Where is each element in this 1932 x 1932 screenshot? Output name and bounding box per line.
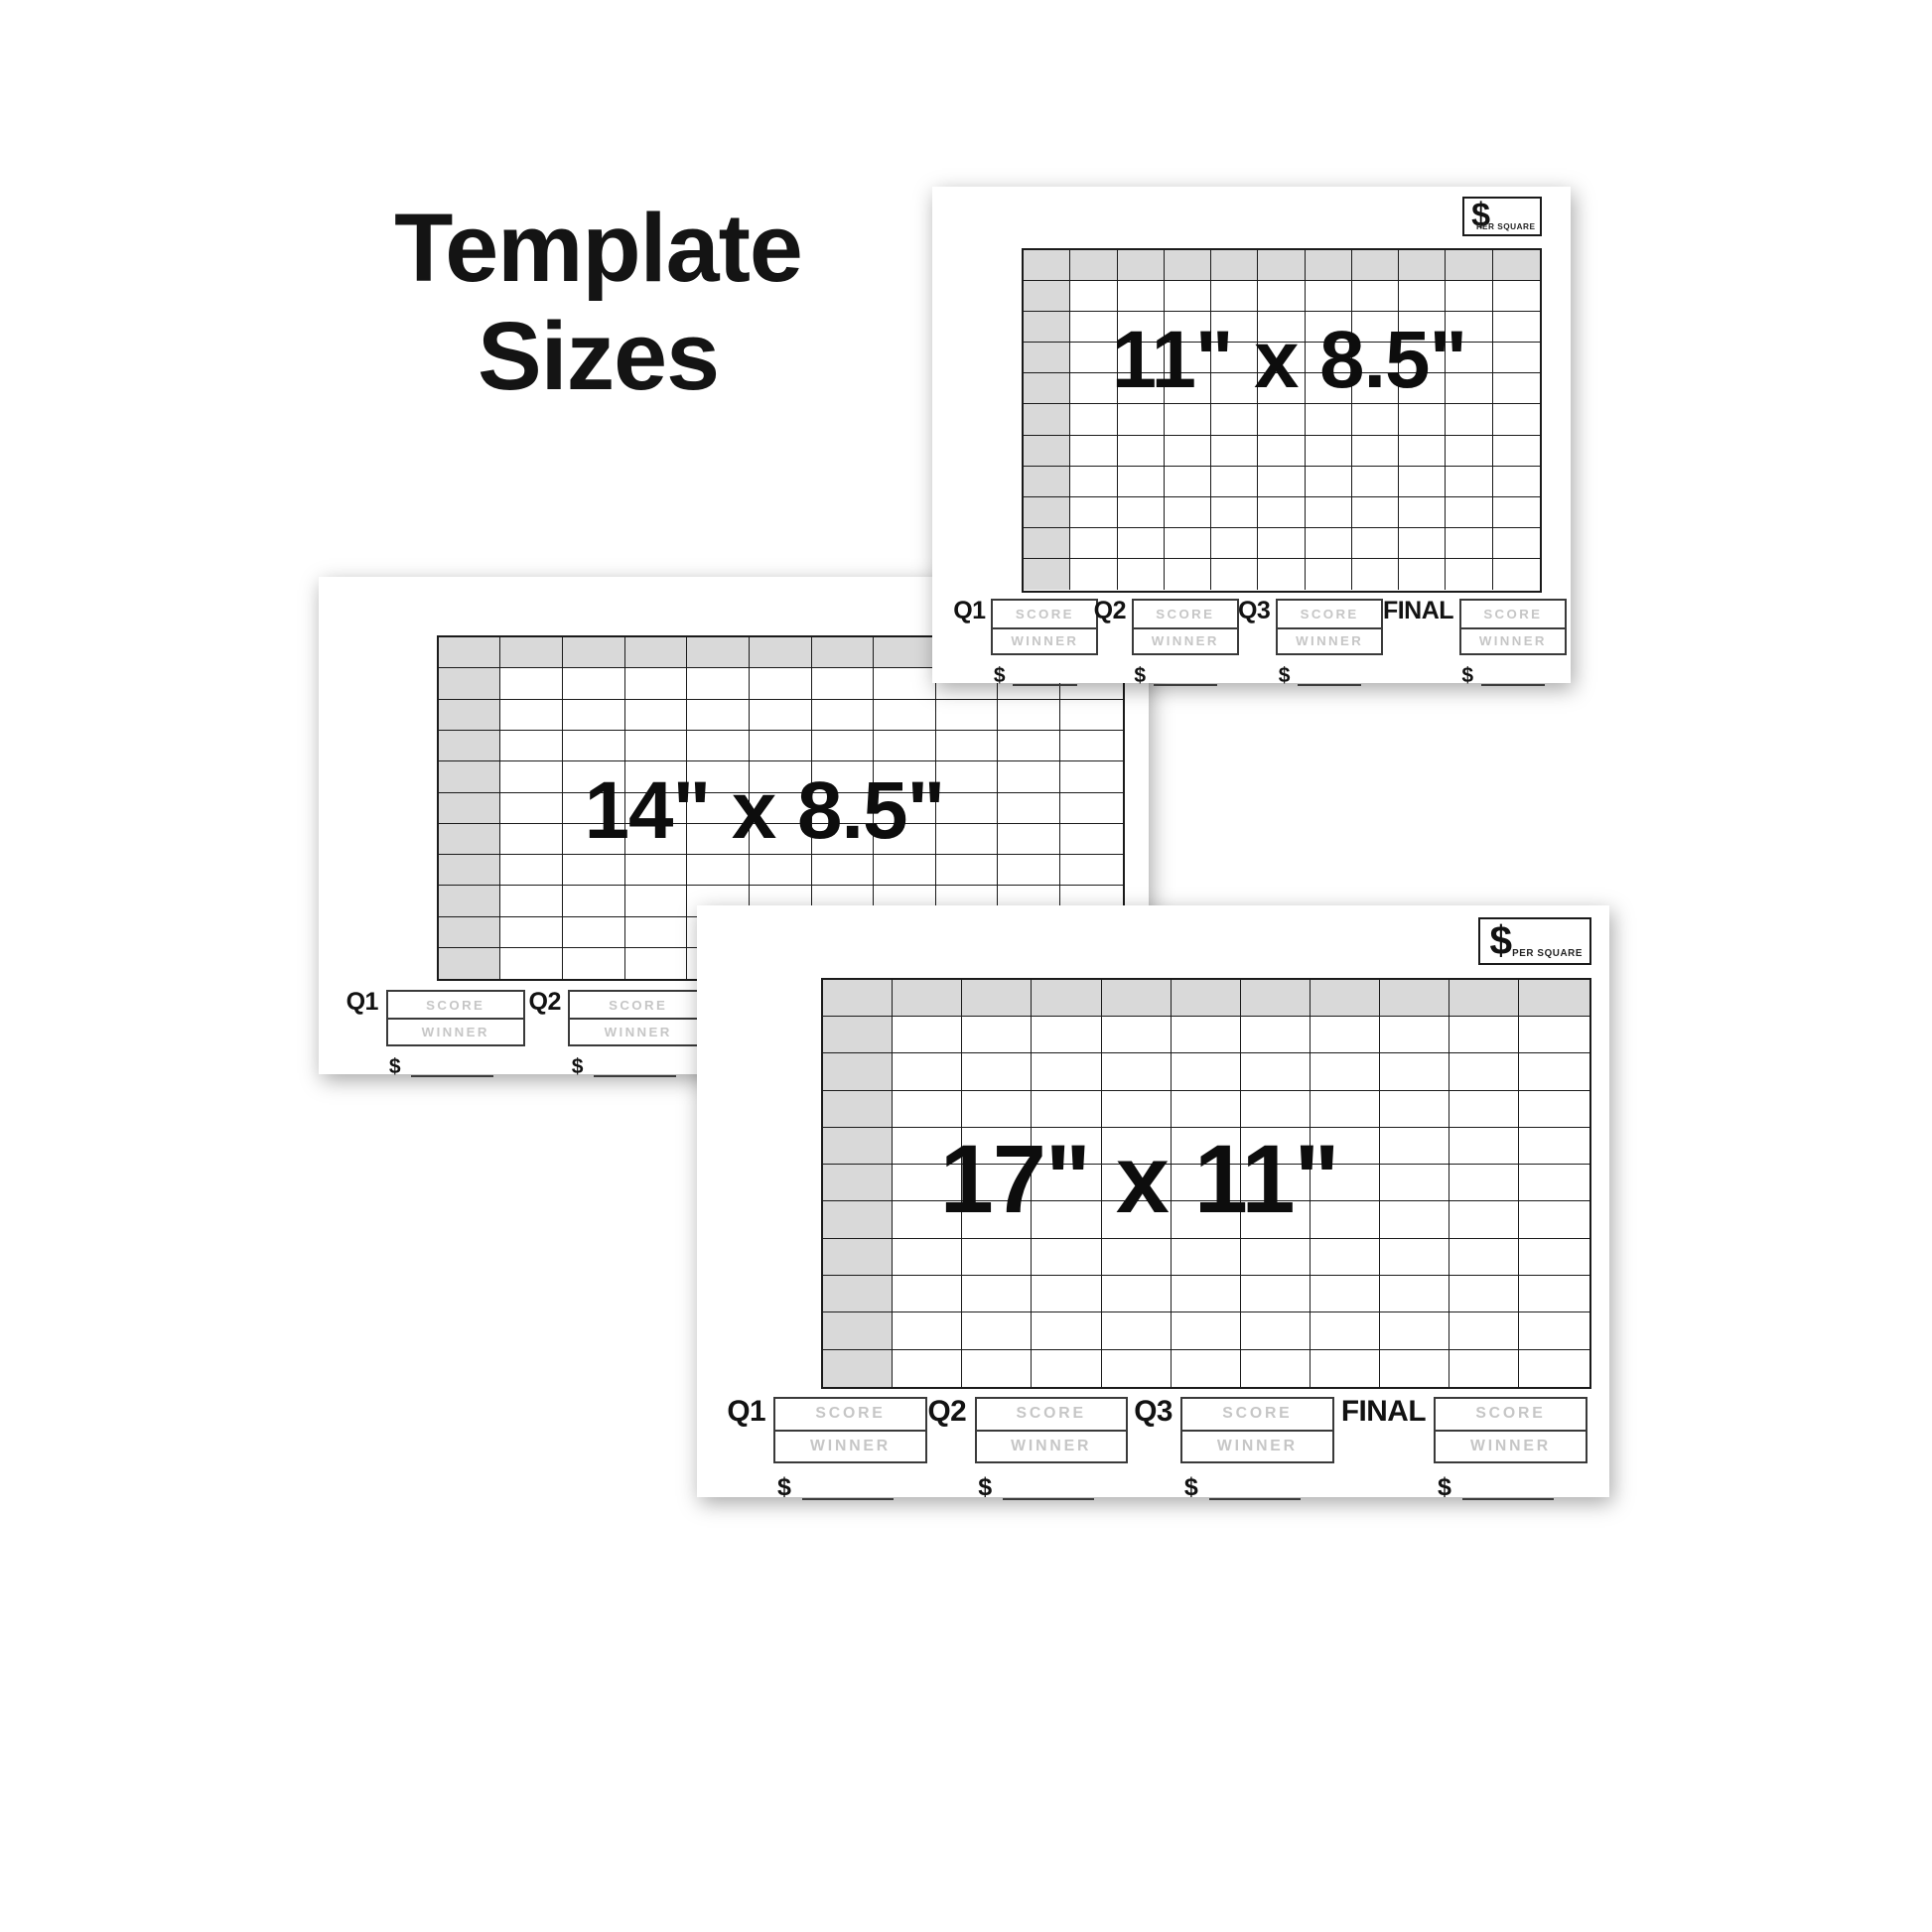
grid-cell xyxy=(962,1312,1032,1349)
grid-cell xyxy=(1493,436,1540,467)
grid-cell xyxy=(998,793,1060,824)
grid-cell xyxy=(1172,1239,1241,1276)
grid-cell xyxy=(1165,497,1211,528)
grid-cell xyxy=(750,731,812,761)
winner-cell: WINNER xyxy=(1134,627,1237,654)
score-cell: SCORE xyxy=(1461,601,1565,627)
header-cell xyxy=(823,1091,893,1128)
grid-cell xyxy=(563,700,625,731)
quarter-label: Q2 xyxy=(1094,599,1126,623)
grid-cell xyxy=(1519,1017,1588,1053)
amount-dollar-sign: $ xyxy=(978,1475,992,1500)
grid-cell xyxy=(1352,559,1399,590)
grid-cell xyxy=(812,700,875,731)
grid-cell xyxy=(1070,559,1117,590)
header-cell xyxy=(823,1128,893,1165)
score-cell: SCORE xyxy=(1134,601,1237,627)
blank-amount-line xyxy=(1481,671,1545,686)
grid-cell xyxy=(1446,436,1492,467)
score-winner-box: SCORE WINNER xyxy=(386,990,525,1046)
grid-cell xyxy=(1241,1091,1311,1128)
grid-cell xyxy=(893,1350,962,1387)
header-cell xyxy=(1102,980,1172,1017)
quarters-row: Q1 SCORE WINNER $ Q2 SCORE WINNER xyxy=(932,599,1571,683)
grid-cell xyxy=(625,700,688,731)
grid-cell xyxy=(1032,1239,1101,1276)
grid-cell xyxy=(1102,1276,1172,1312)
amount-line: $ xyxy=(1434,1475,1587,1500)
dollar-sign: $ xyxy=(1490,919,1513,962)
grid-cell xyxy=(1449,1128,1519,1165)
grid-cell xyxy=(1380,1312,1449,1349)
grid-cell xyxy=(1519,1091,1588,1128)
grid-cell xyxy=(1102,1239,1172,1276)
header-cell xyxy=(1024,281,1070,312)
grid-cell xyxy=(936,824,999,855)
quarter-group-q2: Q2 SCORE WINNER $ xyxy=(529,990,708,1077)
grid-cell xyxy=(1165,528,1211,559)
page-title: Template Sizes xyxy=(293,195,903,410)
grid-cell xyxy=(1070,497,1117,528)
grid-cell xyxy=(500,855,563,886)
grid-cell xyxy=(1449,1312,1519,1349)
amount-dollar-sign: $ xyxy=(1134,665,1146,686)
grid-cell xyxy=(936,761,999,792)
header-cell xyxy=(823,1017,893,1053)
grid-cell xyxy=(1449,1239,1519,1276)
header-cell xyxy=(1211,250,1258,281)
header-cell xyxy=(1024,404,1070,435)
blank-amount-line xyxy=(1013,671,1076,686)
header-cell xyxy=(823,1165,893,1201)
grid-cell xyxy=(812,731,875,761)
grid-cell xyxy=(1352,404,1399,435)
grid-cell xyxy=(1493,343,1540,373)
grid-cell xyxy=(1211,497,1258,528)
grid-cell xyxy=(1519,1201,1588,1238)
grid-cell xyxy=(962,1350,1032,1387)
grid-cell xyxy=(874,855,936,886)
grid-cell xyxy=(1399,436,1446,467)
header-cell xyxy=(823,1053,893,1090)
grid-cell xyxy=(1258,436,1305,467)
blank-amount-line xyxy=(1462,1482,1554,1500)
grid-cell xyxy=(1118,281,1165,312)
score-cell: SCORE xyxy=(993,601,1096,627)
grid-cell xyxy=(1446,467,1492,497)
grid-cell xyxy=(1306,281,1352,312)
grid-cell xyxy=(1211,436,1258,467)
grid-cell xyxy=(1399,528,1446,559)
score-cell: SCORE xyxy=(388,992,523,1019)
quarter-label: FINAL xyxy=(1383,599,1453,623)
grid-cell xyxy=(1380,1091,1449,1128)
grid-cell xyxy=(812,855,875,886)
grid-cell xyxy=(962,1053,1032,1090)
grid-cell xyxy=(563,886,625,916)
template-card-17x11: $ PER SQUARE 17" x 11" Q1 SCORE WINNER $… xyxy=(697,905,1609,1497)
winner-cell: WINNER xyxy=(1278,627,1381,654)
grid-cell xyxy=(1060,700,1123,731)
amount-line: $ xyxy=(568,1056,707,1077)
grid-cell xyxy=(1102,1091,1172,1128)
blank-amount-line xyxy=(1003,1482,1094,1500)
header-cell xyxy=(823,1201,893,1238)
header-cell xyxy=(1024,436,1070,467)
grid-cell xyxy=(1449,1276,1519,1312)
grid-cell xyxy=(998,855,1060,886)
page-title-line2: Sizes xyxy=(293,303,903,411)
blank-amount-line xyxy=(1209,1482,1301,1500)
grid-cell xyxy=(1493,373,1540,404)
quarter-group-q2: Q2 SCORE WINNER $ xyxy=(1094,599,1239,686)
grid-cell xyxy=(1102,1312,1172,1349)
grid-cell xyxy=(1258,528,1305,559)
amount-dollar-sign: $ xyxy=(777,1475,791,1500)
grid-cell xyxy=(563,948,625,979)
grid-cell xyxy=(750,668,812,699)
grid-cell xyxy=(1306,497,1352,528)
header-cell xyxy=(874,637,936,668)
per-square-caption: PER SQUARE xyxy=(1512,948,1583,959)
grid-cell xyxy=(874,731,936,761)
grid-cell xyxy=(1449,1201,1519,1238)
header-cell xyxy=(1519,980,1588,1017)
grid-cell xyxy=(1449,1017,1519,1053)
grid-cell xyxy=(1258,467,1305,497)
grid-cell xyxy=(1241,1017,1311,1053)
size-label: 11" x 8.5" xyxy=(1112,314,1466,407)
grid-cell xyxy=(1165,281,1211,312)
blank-amount-line xyxy=(1154,671,1217,686)
grid-cell xyxy=(1102,1350,1172,1387)
header-cell xyxy=(439,793,501,824)
grid-cell xyxy=(1241,1239,1311,1276)
grid-cell xyxy=(1118,404,1165,435)
grid-cell xyxy=(563,668,625,699)
header-cell xyxy=(1493,250,1540,281)
blank-amount-line xyxy=(802,1482,894,1500)
header-cell xyxy=(1032,980,1101,1017)
grid-cell xyxy=(1211,559,1258,590)
header-cell xyxy=(1306,250,1352,281)
blank-amount-line xyxy=(1298,671,1361,686)
grid-cell xyxy=(1211,528,1258,559)
grid-cell xyxy=(1102,1053,1172,1090)
header-cell xyxy=(439,948,501,979)
grid-cell xyxy=(1241,1276,1311,1312)
amount-line: $ xyxy=(975,1475,1128,1500)
grid-cell xyxy=(687,855,750,886)
header-cell xyxy=(1024,343,1070,373)
header-cell xyxy=(1399,250,1446,281)
amount-dollar-sign: $ xyxy=(389,1056,401,1077)
winner-cell: WINNER xyxy=(993,627,1096,654)
grid-cell xyxy=(563,917,625,948)
header-cell xyxy=(1024,467,1070,497)
header-cell xyxy=(439,637,501,668)
quarters-row: Q1 SCORE WINNER $ Q2 SCORE WINNER xyxy=(697,1397,1609,1497)
header-cell xyxy=(687,637,750,668)
grid-cell xyxy=(1032,1312,1101,1349)
grid-cell xyxy=(1306,404,1352,435)
header-cell xyxy=(563,637,625,668)
quarter-group-q3: Q3 SCORE WINNER $ xyxy=(1134,1397,1333,1500)
quarter-label: Q3 xyxy=(1134,1397,1173,1427)
price-per-square-box: $ PER SQUARE xyxy=(1478,917,1591,965)
grid-cell xyxy=(1446,281,1492,312)
grid-cell xyxy=(893,1312,962,1349)
grid-cell xyxy=(936,793,999,824)
grid-cell xyxy=(1060,855,1123,886)
winner-cell: WINNER xyxy=(775,1430,924,1461)
header-cell xyxy=(1172,980,1241,1017)
grid-cell xyxy=(1380,1053,1449,1090)
header-cell xyxy=(1380,980,1449,1017)
grid-cell xyxy=(1070,528,1117,559)
grid-cell xyxy=(1172,1312,1241,1349)
grid-cell xyxy=(1380,1239,1449,1276)
grid-cell xyxy=(1352,467,1399,497)
grid-cell xyxy=(1493,312,1540,343)
winner-cell: WINNER xyxy=(1182,1430,1331,1461)
grid-cell xyxy=(500,824,563,855)
score-winner-box: SCORE WINNER xyxy=(773,1397,926,1463)
grid-cell xyxy=(1311,1239,1380,1276)
grid-cell xyxy=(1070,343,1117,373)
header-cell xyxy=(439,886,501,916)
quarter-group-q3: Q3 SCORE WINNER $ xyxy=(1238,599,1383,686)
header-cell xyxy=(500,637,563,668)
grid-cell xyxy=(1399,559,1446,590)
header-cell xyxy=(439,917,501,948)
grid-cell xyxy=(1493,281,1540,312)
grid-cell xyxy=(962,1276,1032,1312)
grid-cell xyxy=(1172,1017,1241,1053)
grid-cell xyxy=(1211,281,1258,312)
grid-cell xyxy=(1493,559,1540,590)
grid-cell xyxy=(1493,497,1540,528)
grid-cell xyxy=(1399,281,1446,312)
grid-cell xyxy=(1306,467,1352,497)
grid-cell xyxy=(1399,497,1446,528)
header-cell xyxy=(439,731,501,761)
grid-cell xyxy=(1380,1350,1449,1387)
grid-cell xyxy=(625,948,688,979)
header-cell xyxy=(1449,980,1519,1017)
winner-cell: WINNER xyxy=(977,1430,1126,1461)
grid-cell xyxy=(625,731,688,761)
grid-cell xyxy=(563,855,625,886)
grid-cell xyxy=(1519,1128,1588,1165)
header-cell xyxy=(1241,980,1311,1017)
header-cell xyxy=(1024,250,1070,281)
header-cell xyxy=(1024,312,1070,343)
grid-cell xyxy=(1032,1276,1101,1312)
grid-cell xyxy=(893,1239,962,1276)
grid-cell xyxy=(1311,1091,1380,1128)
score-cell: SCORE xyxy=(1182,1399,1331,1431)
grid-cell xyxy=(1172,1091,1241,1128)
grid-cell xyxy=(1352,436,1399,467)
grid-cell xyxy=(1070,373,1117,404)
blank-amount-line xyxy=(594,1062,677,1077)
grid-cell xyxy=(1519,1239,1588,1276)
grid-cell xyxy=(1311,1350,1380,1387)
header-cell xyxy=(962,980,1032,1017)
grid-cell xyxy=(500,917,563,948)
grid-cell xyxy=(962,1239,1032,1276)
amount-dollar-sign: $ xyxy=(1184,1475,1198,1500)
header-cell xyxy=(1352,250,1399,281)
grid-cell xyxy=(687,731,750,761)
grid-cell xyxy=(893,1276,962,1312)
grid-cell xyxy=(1118,467,1165,497)
grid-cell xyxy=(1380,1276,1449,1312)
amount-dollar-sign: $ xyxy=(1461,665,1473,686)
grid-cell xyxy=(1258,497,1305,528)
grid-cell xyxy=(998,700,1060,731)
header-cell xyxy=(1258,250,1305,281)
grid-cell xyxy=(1306,559,1352,590)
grid-cell xyxy=(1258,404,1305,435)
score-winner-box: SCORE WINNER xyxy=(975,1397,1128,1463)
amount-dollar-sign: $ xyxy=(1279,665,1291,686)
grid-cell xyxy=(1102,1017,1172,1053)
grid-cell xyxy=(1118,497,1165,528)
grid-cell xyxy=(1311,1312,1380,1349)
header-cell xyxy=(823,1312,893,1349)
header-cell xyxy=(1070,250,1117,281)
grid-cell xyxy=(1060,761,1123,792)
quarter-label: Q1 xyxy=(346,990,378,1015)
score-winner-box: SCORE WINNER xyxy=(1276,599,1383,655)
grid-cell xyxy=(500,793,563,824)
header-cell xyxy=(439,700,501,731)
grid-cell xyxy=(1399,404,1446,435)
grid-cell xyxy=(1211,467,1258,497)
grid-cell xyxy=(687,700,750,731)
grid-cell xyxy=(874,668,936,699)
score-cell: SCORE xyxy=(977,1399,1126,1431)
header-cell xyxy=(439,855,501,886)
grid-cell xyxy=(1211,404,1258,435)
score-winner-box: SCORE WINNER xyxy=(1132,599,1239,655)
grid-cell xyxy=(1449,1053,1519,1090)
winner-cell: WINNER xyxy=(388,1018,523,1044)
score-winner-box: SCORE WINNER xyxy=(1434,1397,1587,1463)
grid-cell xyxy=(998,824,1060,855)
grid-cell xyxy=(1241,1312,1311,1349)
grid-cell xyxy=(1493,467,1540,497)
amount-line: $ xyxy=(1276,665,1383,686)
grid-cell xyxy=(936,855,999,886)
quarter-group-q1: Q1 SCORE WINNER $ xyxy=(953,599,1098,686)
grid-cell xyxy=(1352,497,1399,528)
quarter-group-final: FINAL SCORE WINNER $ xyxy=(1383,599,1567,686)
grid-cell xyxy=(1032,1053,1101,1090)
score-cell: SCORE xyxy=(1278,601,1381,627)
header-cell xyxy=(1024,528,1070,559)
blank-amount-line xyxy=(411,1062,494,1077)
grid-cell xyxy=(1118,528,1165,559)
grid-cell xyxy=(1172,1053,1241,1090)
winner-cell: WINNER xyxy=(1461,627,1565,654)
grid-cell xyxy=(1172,1276,1241,1312)
grid-cell xyxy=(1380,1165,1449,1201)
grid-cell xyxy=(1449,1350,1519,1387)
header-cell xyxy=(439,824,501,855)
grid-cell xyxy=(874,700,936,731)
grid-cell xyxy=(1060,824,1123,855)
grid-cell xyxy=(1380,1201,1449,1238)
grid-cell xyxy=(1165,559,1211,590)
amount-dollar-sign: $ xyxy=(572,1056,584,1077)
quarter-label: Q2 xyxy=(928,1397,967,1427)
grid-cell xyxy=(1032,1017,1101,1053)
grid-cell xyxy=(998,731,1060,761)
header-cell xyxy=(625,637,688,668)
grid-cell xyxy=(1519,1312,1588,1349)
score-winner-box: SCORE WINNER xyxy=(1459,599,1567,655)
grid-cell xyxy=(1070,436,1117,467)
grid-cell xyxy=(1352,281,1399,312)
header-cell xyxy=(1311,980,1380,1017)
amount-dollar-sign: $ xyxy=(1438,1475,1451,1500)
grid-cell xyxy=(936,731,999,761)
grid-cell xyxy=(1060,793,1123,824)
grid-cell xyxy=(1165,404,1211,435)
grid-cell xyxy=(962,1017,1032,1053)
winner-cell: WINNER xyxy=(570,1018,705,1044)
quarter-group-q2: Q2 SCORE WINNER $ xyxy=(928,1397,1128,1500)
grid-cell xyxy=(1258,281,1305,312)
header-cell xyxy=(1024,559,1070,590)
amount-line: $ xyxy=(1132,665,1239,686)
grid-cell xyxy=(687,668,750,699)
grid-cell xyxy=(812,668,875,699)
grid-cell xyxy=(500,731,563,761)
grid-cell xyxy=(1258,559,1305,590)
grid-cell xyxy=(500,700,563,731)
header-cell xyxy=(439,668,501,699)
quarter-group-q1: Q1 SCORE WINNER $ xyxy=(727,1397,926,1500)
quarter-label: Q1 xyxy=(727,1397,765,1427)
price-per-square-box: $ PER SQUARE xyxy=(1462,197,1542,236)
header-cell xyxy=(439,761,501,792)
grid-cell xyxy=(750,855,812,886)
header-cell xyxy=(812,637,875,668)
header-cell xyxy=(1024,497,1070,528)
grid-cell xyxy=(1306,528,1352,559)
grid-cell xyxy=(1352,528,1399,559)
grid-cell xyxy=(936,700,999,731)
grid-cell xyxy=(1060,731,1123,761)
header-cell xyxy=(893,980,962,1017)
grid-cell xyxy=(1493,528,1540,559)
amount-line: $ xyxy=(1180,1475,1333,1500)
grid-cell xyxy=(1172,1350,1241,1387)
grid-cell xyxy=(1519,1276,1588,1312)
quarter-label: Q2 xyxy=(529,990,561,1015)
grid-cell xyxy=(1070,404,1117,435)
page-title-line1: Template xyxy=(293,195,903,303)
score-winner-box: SCORE WINNER xyxy=(568,990,707,1046)
header-cell xyxy=(823,980,893,1017)
per-square-caption: PER SQUARE xyxy=(1476,222,1536,231)
header-cell xyxy=(823,1239,893,1276)
size-label: 17" x 11" xyxy=(940,1124,1339,1235)
